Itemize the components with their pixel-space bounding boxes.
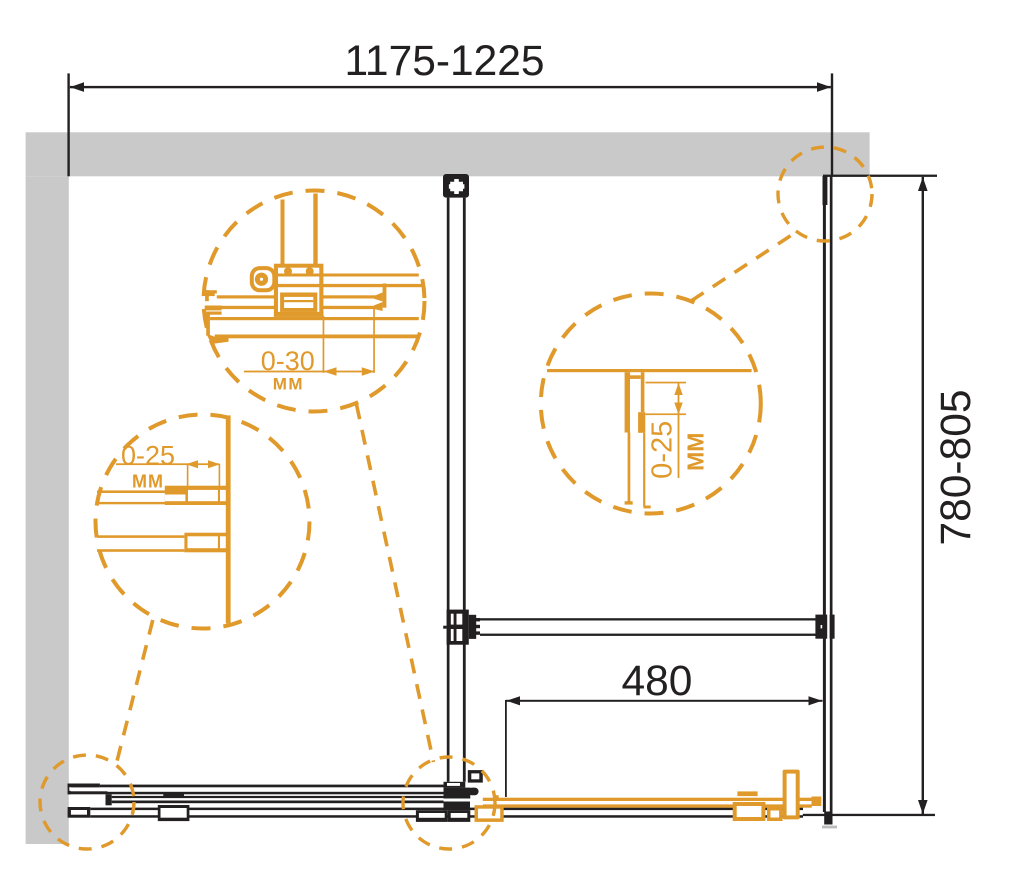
svg-text:MM: MM bbox=[273, 375, 304, 394]
svg-text:780-805: 780-805 bbox=[933, 390, 980, 546]
svg-text:1175-1225: 1175-1225 bbox=[344, 38, 544, 85]
svg-text:0-30: 0-30 bbox=[261, 346, 315, 376]
svg-text:0-25: 0-25 bbox=[647, 421, 679, 479]
svg-text:MM: MM bbox=[132, 472, 164, 492]
svg-text:480: 480 bbox=[622, 658, 693, 705]
svg-text:MM: MM bbox=[683, 433, 709, 471]
svg-text:0-25: 0-25 bbox=[121, 441, 175, 471]
